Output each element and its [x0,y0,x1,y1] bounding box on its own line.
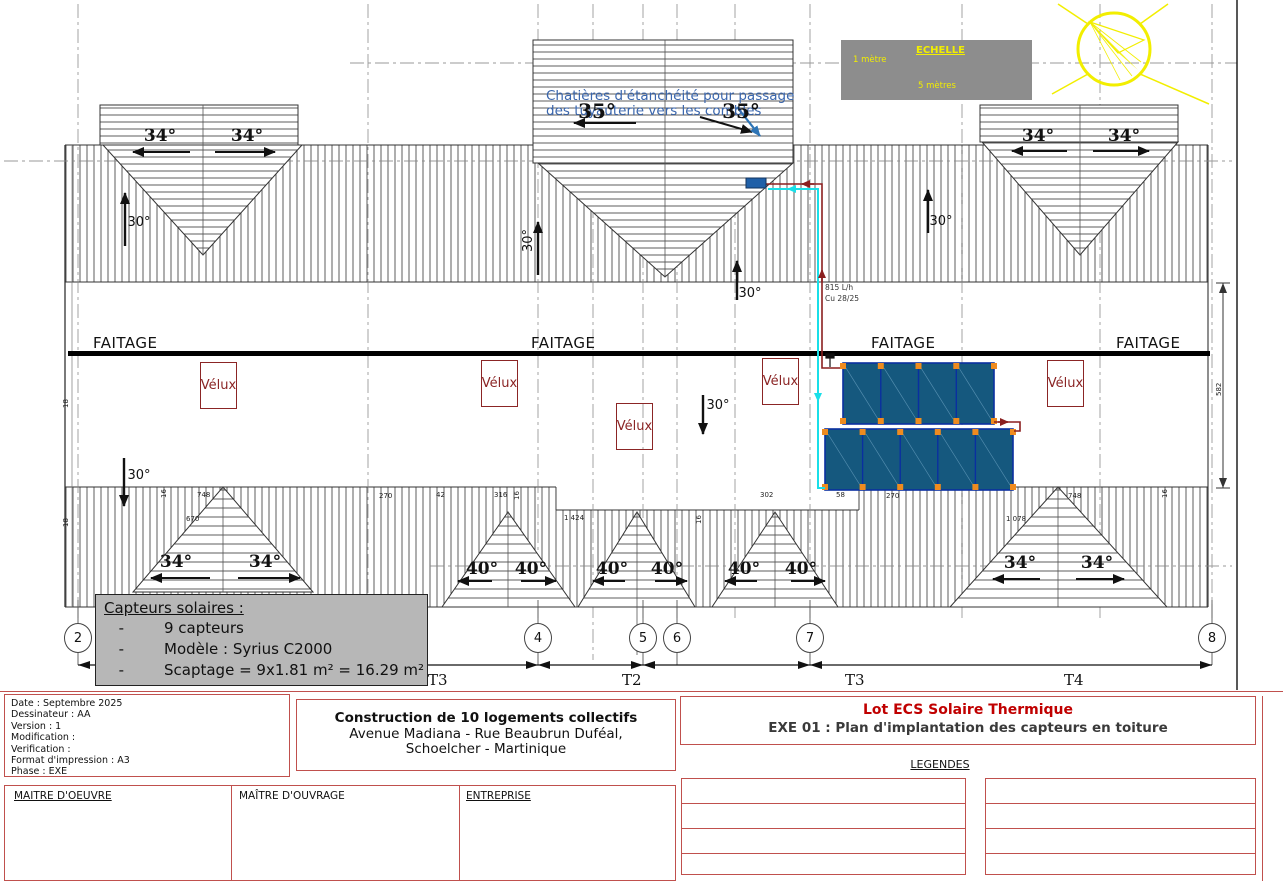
grid-bubble: 2 [64,623,92,653]
info-dessinateur: Dessinateur : AA [11,709,283,720]
velux-window: Vélux [1047,360,1084,407]
collectors-count: 9 capteurs [164,618,244,639]
dim-label: 16 [160,489,168,498]
angle-label: 34° [1004,553,1036,573]
collectors-model: Modèle : Syrius C2000 [164,639,332,660]
faitage-label: FAITAGE [531,334,596,352]
angle-label: 40° [466,559,498,579]
angle-label: 34° [1108,126,1140,146]
legend-table-right [985,778,1256,875]
dim-label: 42 [436,491,445,499]
angle-label: 40° [728,559,760,579]
drawing-info-box: Date : Septembre 2025 Dessinateur : AA V… [4,694,290,777]
span-label: T3 [845,671,865,689]
angle-label: 40° [596,559,628,579]
velux-window: Vélux [616,403,653,450]
angle-label: 34° [160,552,192,572]
flow-rate-label: 815 L/h [825,283,853,292]
legend-row [986,854,1255,878]
dim-label: 748 [197,491,210,499]
angle-label: 34° [144,126,176,146]
dim-label: 18 [62,518,70,527]
info-version: Version : 1 [11,721,283,732]
legend-row [986,779,1255,804]
solar-panel-array [822,363,1016,490]
span-label: T2 [622,671,642,689]
lot-title: Lot ECS Solaire Thermique [681,702,1255,718]
angle-label: 40° [515,559,547,579]
dim-label: 16 [695,515,703,524]
scale-small-label: 1 mètre [853,55,887,65]
slope-angle-label: 30° [929,214,952,229]
column-divider [231,786,232,880]
role-maitre-oeuvre: MAITRE D'OEUVRE [14,790,112,802]
angle-label: 34° [1022,126,1054,146]
dim-label: 270 [886,492,899,500]
column-divider [459,786,460,880]
faitage-label: FAITAGE [871,334,936,352]
grid-bubble: 6 [663,623,691,653]
drawing-sheet: Chatières d'étanchéité pour passage des … [0,0,1283,886]
legend-row [682,779,965,804]
project-name: Construction de 10 logements collectifs [297,711,675,727]
info-phase: Phase : EXE [11,766,283,777]
lot-title-box: Lot ECS Solaire Thermique EXE 01 : Plan … [680,696,1256,745]
dim-label: 18 [62,399,70,408]
dim-label: 270 [379,492,392,500]
project-city: Schoelcher - Martinique [297,742,675,758]
collectors-box-title: Capteurs solaires : [104,599,427,617]
compass-north-icon [1052,4,1209,104]
stakeholders-box: MAITRE D'OEUVRE MAÎTRE D'OUVRAGE ENTREPR… [4,785,676,881]
velux-window: Vélux [762,358,799,405]
angle-label: 34° [249,552,281,572]
dim-label: 1 078 [1006,515,1026,523]
faitage-label: FAITAGE [93,334,158,352]
velux-window: Vélux [200,362,237,409]
angle-label: 35° [578,99,616,123]
drawing-title: EXE 01 : Plan d'implantation des capteur… [681,720,1255,736]
angle-label: 35° [722,99,760,123]
dim-label: 16 [513,491,521,500]
legend-row [682,804,965,829]
grid-bubble: 7 [796,623,824,653]
dim-label: 16 [1161,489,1169,498]
faitage-label: FAITAGE [1116,334,1181,352]
solar-collectors-info-box: Capteurs solaires : -9 capteurs -Modèle … [95,594,428,686]
angle-label: 40° [651,559,683,579]
slope-angle-label: 30° [706,398,729,413]
info-format: Format d'impression : A3 [11,755,283,766]
info-date: Date : Septembre 2025 [11,698,283,709]
info-verification: Verification : [11,744,283,755]
velux-window: Vélux [481,360,518,407]
legendes-label: LEGENDES [910,758,969,771]
angle-label: 40° [785,559,817,579]
role-entreprise: ENTREPRISE [466,790,531,802]
dim-label: 748 [1068,492,1081,500]
dim-label: 302 [760,491,773,499]
collectors-area: Scaptage = 9x1.81 m² = 16.29 m² [164,660,424,681]
legend-row [682,829,965,854]
legend-row [986,804,1255,829]
dim-label: 316 [494,491,507,499]
pipe-size-label: Cu 28/25 [825,294,859,303]
role-maitre-ouvrage: MAÎTRE D'OUVRAGE [239,790,345,802]
project-title-box: Construction de 10 logements collectifs … [296,699,676,771]
dim-label: 58 [836,491,845,499]
legend-table-left [681,778,966,875]
project-address: Avenue Madiana - Rue Beaubrun Duféal, [297,727,675,743]
dim-label: 670 [186,515,199,523]
slope-angle-label: 30° [521,229,536,252]
sheet-right-edge [1262,696,1263,881]
span-label: T4 [1064,671,1084,689]
scale-title: ECHELLE [916,45,965,56]
grid-bubble: 8 [1198,623,1226,653]
slope-angle-label: 30° [738,286,761,301]
titleblock-divider [0,691,1283,692]
grid-bubble: 4 [524,623,552,653]
dim-label: 582 [1215,383,1223,396]
vent-valve-symbol [826,354,834,367]
chatiere-symbol [746,178,766,188]
legend-row [682,854,965,878]
angle-label: 34° [231,126,263,146]
legend-row [986,829,1255,854]
angle-label: 34° [1081,553,1113,573]
dim-label: 1 424 [564,514,584,522]
ridge-line [68,351,1210,356]
span-label: T3 [428,671,448,689]
slope-angle-label: 30° [127,468,150,483]
scale-large-label: 5 mètres [918,81,956,91]
grid-bubble: 5 [629,623,657,653]
info-modification: Modification : [11,732,283,743]
scale-box: ECHELLE 1 mètre 5 mètres [841,40,1032,100]
slope-angle-label: 30° [127,215,150,230]
